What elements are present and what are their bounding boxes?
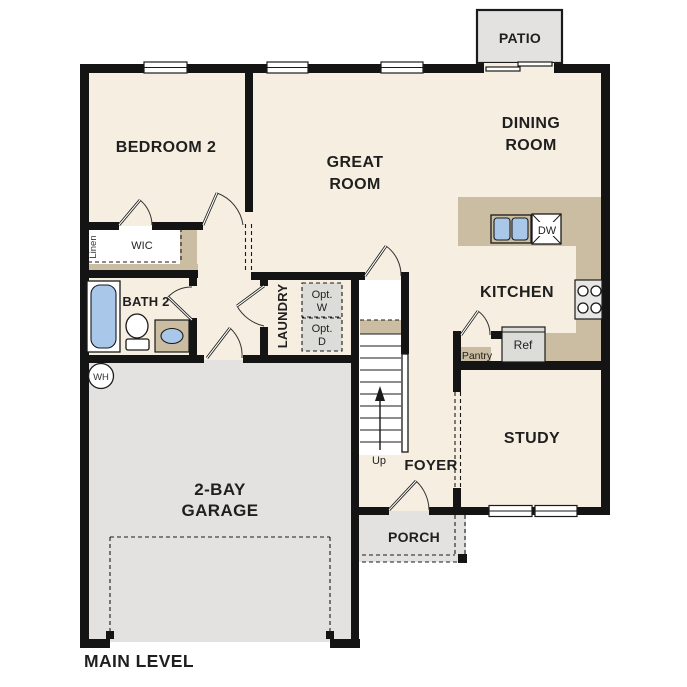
floor-plan: PATIO BEDROOM 2 GREAT ROOM DINING ROOM K… [0, 0, 687, 687]
label-bath2: BATH 2 [122, 294, 169, 309]
label-great-room-line2: ROOM [329, 176, 380, 193]
sliding-door-panel-1 [486, 67, 520, 71]
label-refrigerator: Ref [514, 338, 533, 352]
label-opt-washer-line2: W [317, 302, 328, 314]
label-dining-room-line1: DINING [502, 115, 560, 132]
label-porch: PORCH [388, 529, 440, 545]
label-dining-room-line2: ROOM [505, 137, 556, 154]
label-dishwasher: DW [538, 225, 557, 237]
kitchen-sink-basin-left [494, 218, 510, 240]
label-great-room-line1: GREAT [327, 154, 384, 171]
bathtub-fixture [91, 285, 116, 348]
label-opt-dryer-line2: D [318, 336, 326, 348]
label-opt-washer-line1: Opt. [312, 289, 333, 301]
stair-landing [360, 320, 401, 334]
label-wic: WIC [131, 240, 152, 252]
label-water-heater: WH [93, 372, 109, 383]
stove-fixture [575, 280, 602, 319]
vanity-sink-fixture [161, 329, 183, 344]
toilet-tank [126, 339, 149, 350]
page-title: MAIN LEVEL [84, 651, 194, 671]
kitchen-bottom-counter [545, 333, 602, 361]
label-opt-dryer-line1: Opt. [312, 323, 333, 335]
floor-plan-canvas: PATIO BEDROOM 2 GREAT ROOM DINING ROOM K… [0, 0, 687, 687]
kitchen-sink-basin-right [512, 218, 528, 240]
sliding-door-panel-2 [518, 62, 552, 66]
label-bedroom2: BEDROOM 2 [116, 139, 217, 156]
label-patio: PATIO [499, 30, 541, 46]
label-kitchen: KITCHEN [480, 284, 554, 301]
label-stairs-up: Up [372, 455, 386, 467]
label-garage-line1: 2-BAY [194, 480, 246, 499]
label-pantry: Pantry [462, 350, 493, 362]
toilet-bowl [126, 314, 148, 338]
label-foyer: FOYER [404, 457, 457, 474]
label-linen: Linen [88, 235, 99, 258]
label-study: STUDY [504, 430, 560, 447]
stair-railing [402, 354, 408, 452]
label-laundry: LAUNDRY [275, 284, 290, 349]
label-garage-line2: GARAGE [181, 501, 258, 520]
